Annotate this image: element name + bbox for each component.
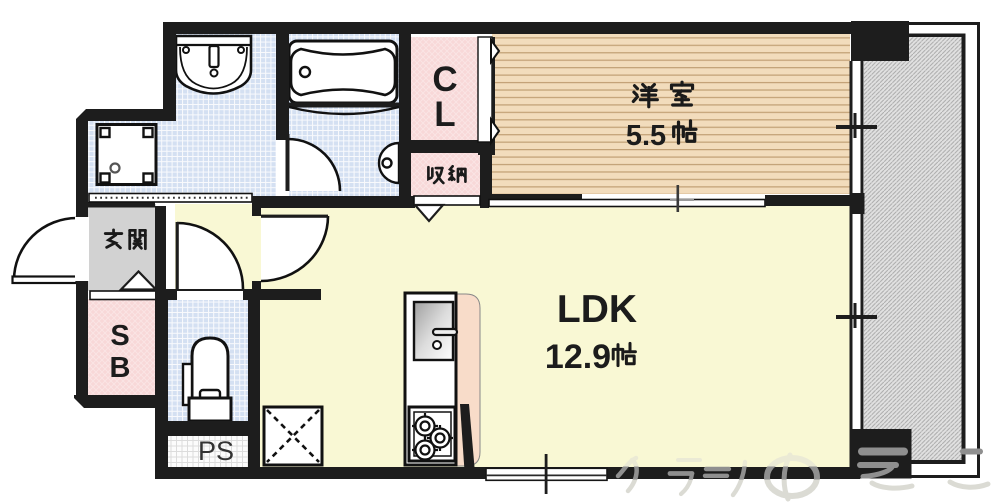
svg-text:PS: PS (198, 436, 234, 466)
svg-text:S: S (110, 320, 129, 352)
svg-text:5.5: 5.5 (626, 120, 666, 152)
svg-text:LDK: LDK (557, 288, 637, 331)
svg-text:B: B (110, 352, 131, 384)
svg-text:12.9: 12.9 (545, 338, 611, 376)
svg-text:C: C (432, 60, 457, 99)
svg-text:L: L (434, 95, 455, 134)
